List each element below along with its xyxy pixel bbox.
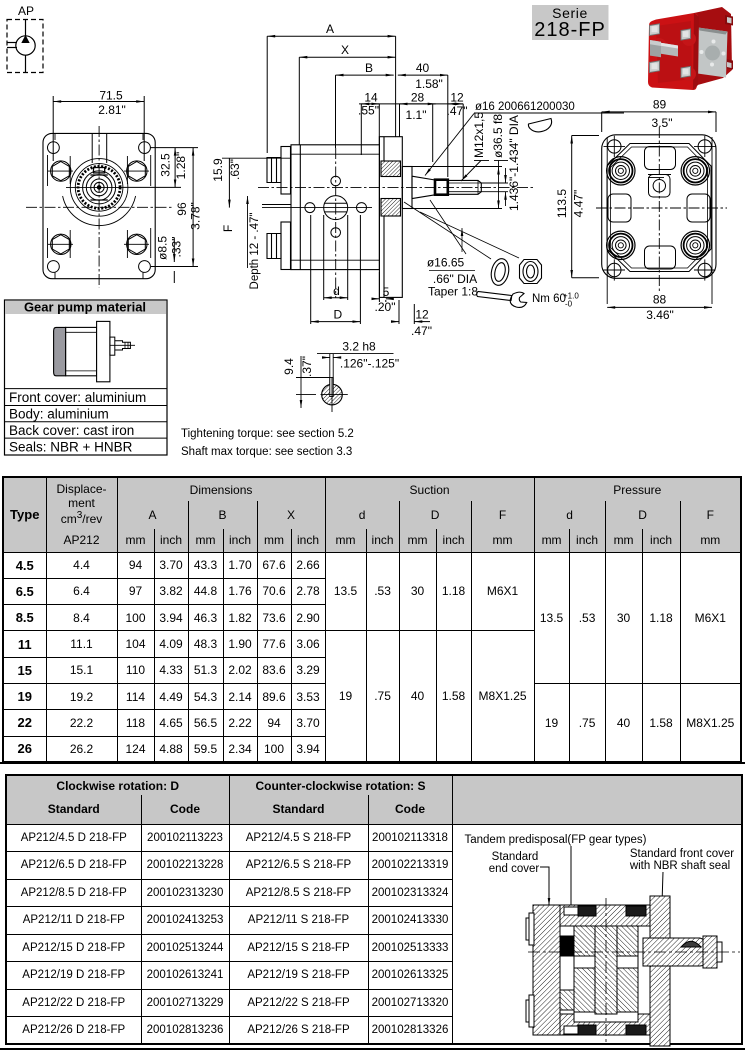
svg-text:M12x1,5: M12x1,5 (472, 112, 486, 158)
svg-text:Standard: Standard (492, 851, 539, 863)
svg-text:3.5": 3.5" (652, 116, 673, 130)
svg-text:Nm 60: Nm 60 (532, 293, 566, 305)
svg-text:.55": .55" (358, 104, 379, 118)
svg-text:ø8.5: ø8.5 (156, 236, 170, 260)
svg-text:1.436"-1.434" DIA: 1.436"-1.434" DIA (507, 115, 521, 211)
svg-text:Body: aluminium: Body: aluminium (9, 407, 109, 422)
svg-text:Back cover: cast iron: Back cover: cast iron (9, 423, 134, 438)
svg-text:ø36.5 f8: ø36.5 f8 (491, 114, 505, 158)
svg-text:Depth 12 - .47": Depth 12 - .47" (249, 213, 261, 290)
svg-text:ø16 200661200030: ø16 200661200030 (475, 101, 575, 113)
svg-text:.20": .20" (375, 300, 396, 314)
svg-text:96: 96 (175, 202, 189, 216)
svg-text:1.1": 1.1" (406, 108, 427, 122)
svg-text:end cover: end cover (489, 863, 540, 875)
svg-text:4.47": 4.47" (572, 190, 586, 218)
svg-text:3.78": 3.78" (189, 202, 203, 230)
svg-text:71.5: 71.5 (99, 89, 123, 103)
svg-text:d: d (333, 284, 340, 298)
svg-text:32.5: 32.5 (159, 153, 173, 177)
svg-text:2.81": 2.81" (98, 103, 126, 117)
svg-text:5: 5 (383, 285, 390, 299)
svg-text:28: 28 (411, 91, 425, 105)
svg-text:.126"-.125": .126"-.125" (340, 357, 399, 371)
svg-text:113.5: 113.5 (555, 189, 569, 218)
svg-text:Gear pump material: Gear pump material (24, 300, 146, 315)
svg-text:D: D (333, 308, 342, 322)
svg-text:Front cover: aluminium: Front cover: aluminium (9, 390, 146, 405)
svg-text:88: 88 (653, 293, 667, 307)
svg-text:12: 12 (450, 91, 464, 105)
svg-text:.33": .33" (170, 237, 184, 258)
svg-text:B: B (365, 61, 373, 75)
svg-text:Standard front cover: Standard front cover (630, 848, 734, 860)
svg-text:.47": .47" (411, 324, 432, 338)
svg-text:Taper 1:8: Taper 1:8 (428, 285, 478, 299)
svg-text:.47": .47" (447, 104, 468, 118)
svg-text:3.2 h8: 3.2 h8 (342, 340, 376, 354)
svg-text:89: 89 (653, 98, 667, 112)
svg-text:.37": .37" (300, 356, 314, 377)
svg-text:-0: -0 (565, 300, 573, 309)
svg-text:1.58": 1.58" (415, 77, 443, 91)
svg-text:15.9: 15.9 (211, 158, 225, 182)
svg-text:.63": .63" (228, 159, 242, 180)
svg-text:9.4: 9.4 (282, 358, 296, 375)
svg-text:12: 12 (415, 308, 429, 322)
svg-text:A: A (326, 22, 334, 36)
svg-text:F: F (221, 225, 235, 232)
svg-text:218-FP: 218-FP (534, 19, 606, 41)
svg-text:AP: AP (18, 4, 34, 18)
svg-text:Tandem predisposal(FP gear typ: Tandem predisposal(FP gear types) (465, 834, 647, 846)
svg-text:Shaft max torque: see section: Shaft max torque: see section 3.3 (181, 446, 352, 458)
svg-text:1.28": 1.28" (174, 152, 188, 180)
svg-text:Tightening torque: see section: Tightening torque: see section 5.2 (181, 428, 354, 440)
svg-text:Seals: NBR + HNBR: Seals: NBR + HNBR (9, 440, 133, 455)
svg-text:X: X (341, 43, 349, 57)
svg-text:40: 40 (416, 61, 430, 75)
svg-text:14: 14 (364, 91, 378, 105)
svg-text:3.46": 3.46" (646, 308, 674, 322)
svg-text:ø16.65: ø16.65 (427, 256, 465, 270)
svg-text:with NBR shaft seal: with NBR shaft seal (629, 860, 730, 872)
